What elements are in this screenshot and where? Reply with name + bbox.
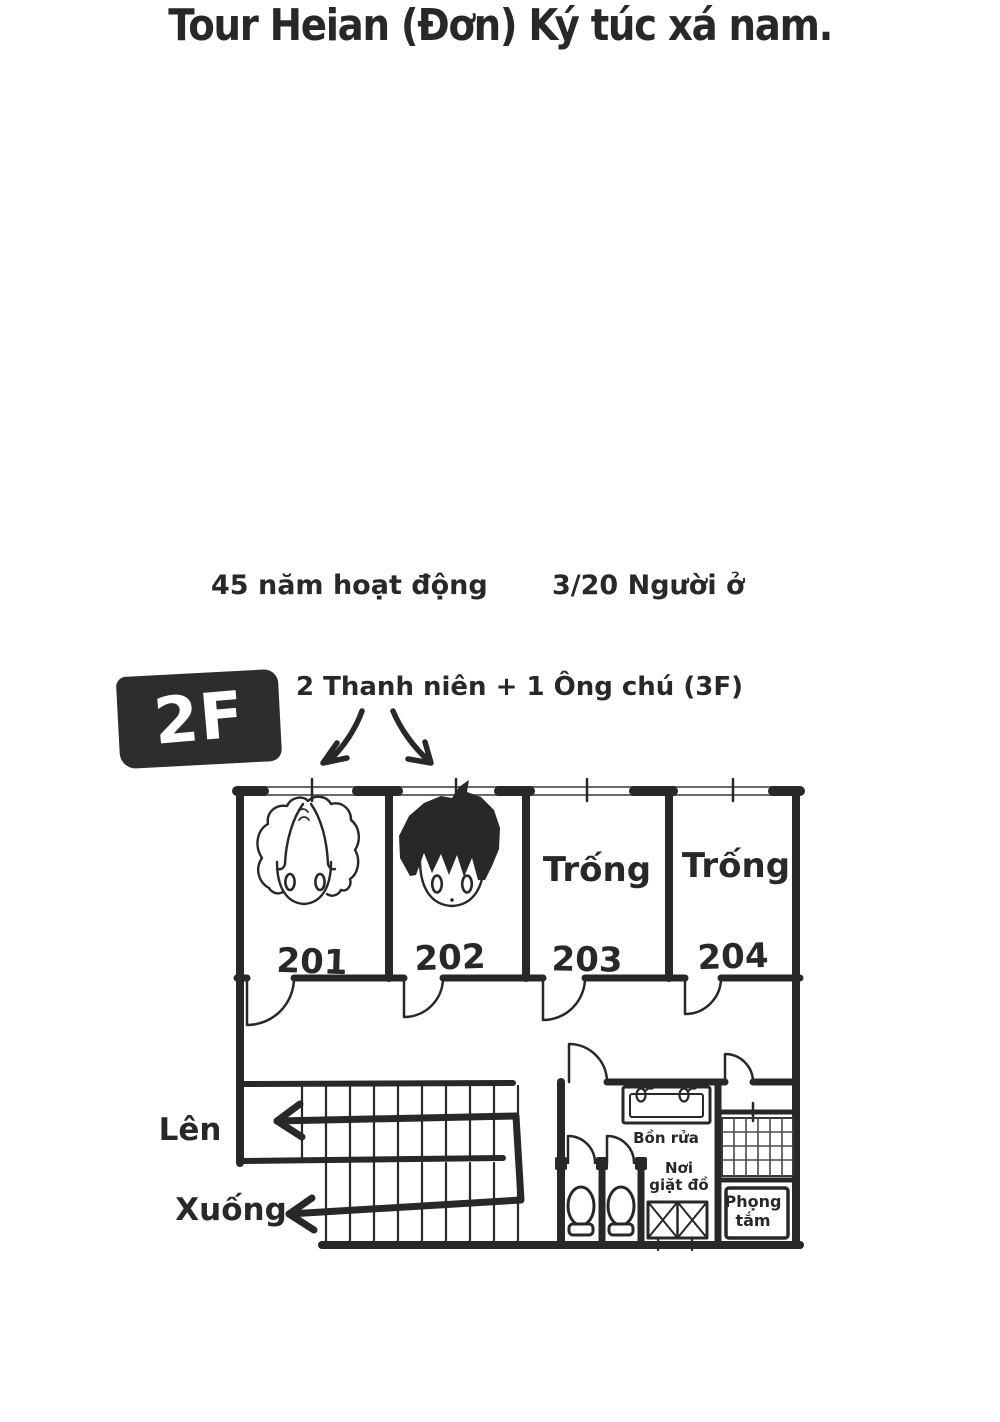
sink-icon: [623, 1083, 710, 1123]
room-201-number: 201: [261, 940, 362, 983]
floor-badge-label: 2F: [151, 678, 247, 760]
floor-badge: 2F: [116, 669, 283, 769]
stairs-up-label: Lên: [150, 1112, 230, 1148]
stairs-down-label: Xuống: [171, 1192, 291, 1228]
room-204-number: 204: [682, 935, 783, 978]
floor-note: 2 Thanh niên + 1 Ông chú (3F): [296, 672, 743, 702]
bath-label: Phọng tắm: [722, 1192, 784, 1230]
laundry-label-line2: giặt đồ: [629, 1177, 729, 1194]
bath-label-line1: Phọng: [722, 1192, 784, 1211]
resident-201-avatar-icon: [257, 797, 358, 904]
room-203-status: Trống: [532, 850, 662, 890]
room-doors: [247, 978, 721, 1025]
room-202-number: 202: [399, 936, 500, 979]
laundry-label: Nơi giặt đồ: [629, 1160, 729, 1194]
stat-occupancy: 3/20 Người ở: [552, 570, 732, 601]
room-204-status: Trống: [671, 846, 801, 886]
toilet-icon: [568, 1187, 594, 1235]
bath-label-line2: tắm: [722, 1211, 784, 1230]
note-arrow-left-icon: [323, 711, 362, 763]
washroom-entry-doors: [569, 1044, 753, 1082]
resident-202-avatar-icon: [399, 780, 500, 906]
laundry-label-line1: Nơi: [629, 1160, 729, 1177]
page-title: Tour Heian (Đơn) Ký túc xá nam.: [0, 0, 1000, 51]
room-203-number: 203: [537, 939, 638, 981]
toilet-icon: [608, 1187, 634, 1235]
stat-years-operating: 45 năm hoạt động: [211, 570, 451, 601]
tiled-floor: [722, 1118, 793, 1176]
note-arrow-right-icon: [393, 711, 431, 763]
sink-label: Bồn rửa: [616, 1130, 716, 1147]
